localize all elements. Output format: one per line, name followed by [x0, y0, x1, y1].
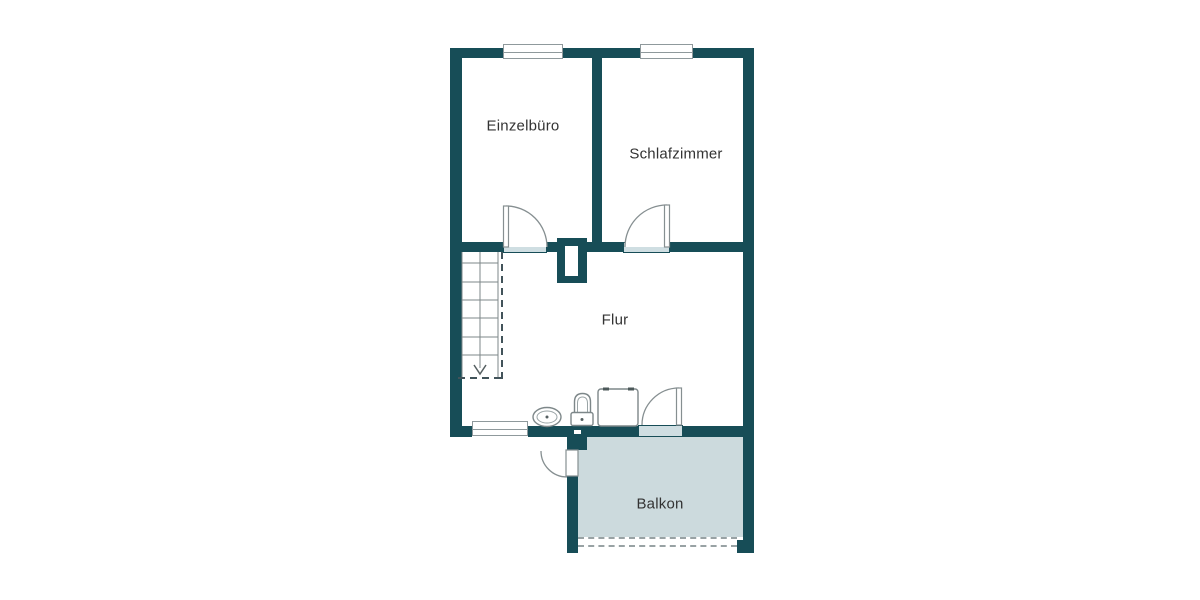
door-leaf: [504, 206, 509, 247]
sink-drain: [546, 416, 549, 419]
door-swing-area: [642, 388, 679, 425]
window-schlafzimmer: [640, 44, 693, 59]
window-pane-line: [504, 52, 562, 53]
toilet-bowl-inner: [578, 397, 588, 413]
wall-balcony-left: [567, 437, 578, 553]
wall-room-divider: [592, 58, 602, 242]
washing-machine-icon: [598, 388, 638, 427]
wall-mid-seg-a: [462, 242, 503, 252]
door-swing-area: [506, 206, 547, 247]
toilet-flush-dot: [581, 418, 584, 421]
window-einzelbuero: [503, 44, 563, 59]
balcony-floor: [578, 437, 743, 537]
sink-basin: [537, 411, 557, 423]
wall-right: [743, 48, 754, 553]
floor-plan: Einzelbüro Schlafzimmer Flur Balkon: [0, 0, 1200, 600]
door-leaf: [665, 205, 670, 247]
toilet-bowl: [575, 394, 591, 414]
wall-flur-bottom-a: [450, 426, 472, 437]
wall-flur-bottom-b: [528, 426, 638, 437]
door-leaf: [677, 388, 682, 425]
door-threshold-einzelbuero: [503, 242, 547, 253]
stair-down-arrow: [474, 365, 486, 374]
door-swing-arc: [625, 205, 667, 247]
window-pane-line: [473, 429, 527, 430]
door-threshold-balkon: [638, 425, 683, 437]
door-threshold-schlafzimmer: [623, 242, 670, 253]
window-pane-line: [641, 52, 692, 53]
wall-mid-seg-c: [585, 242, 623, 252]
door-swing-arc: [506, 206, 547, 247]
room-label-schlafzimmer: Schlafzimmer: [629, 146, 722, 163]
door-swing-area: [541, 451, 567, 477]
toilet-tank: [571, 413, 593, 426]
door-balkon: [642, 388, 682, 425]
wall-top: [450, 48, 754, 58]
staircase-down-icon: [458, 252, 502, 383]
chimney-flue: [565, 246, 578, 276]
balcony-railing: [578, 537, 737, 547]
window-flur: [472, 421, 528, 436]
door-swing-arc: [541, 451, 567, 477]
door-swing-area: [625, 205, 667, 247]
room-label-einzelbuero: Einzelbüro: [487, 118, 560, 135]
chimney-shaft-icon: [557, 238, 587, 283]
washing-machine-body: [598, 389, 638, 426]
room-label-flur: Flur: [602, 312, 629, 329]
wall-balcony-bottom-right: [737, 540, 743, 553]
room-label-balkon: Balkon: [636, 496, 683, 513]
door-einzelbuero: [504, 206, 548, 247]
wall-balcony-left-notch: [578, 437, 587, 450]
door-schlafzimmer: [625, 205, 670, 247]
wall-mid-seg-d: [670, 242, 743, 252]
washing-machine-tab: [628, 388, 634, 391]
door-swing-arc: [642, 388, 679, 425]
wall-left: [450, 48, 462, 437]
wall-flur-bottom-c: [683, 426, 743, 437]
sink-icon: [533, 408, 561, 427]
washing-machine-tab: [603, 388, 609, 391]
sink-outline: [533, 408, 561, 427]
